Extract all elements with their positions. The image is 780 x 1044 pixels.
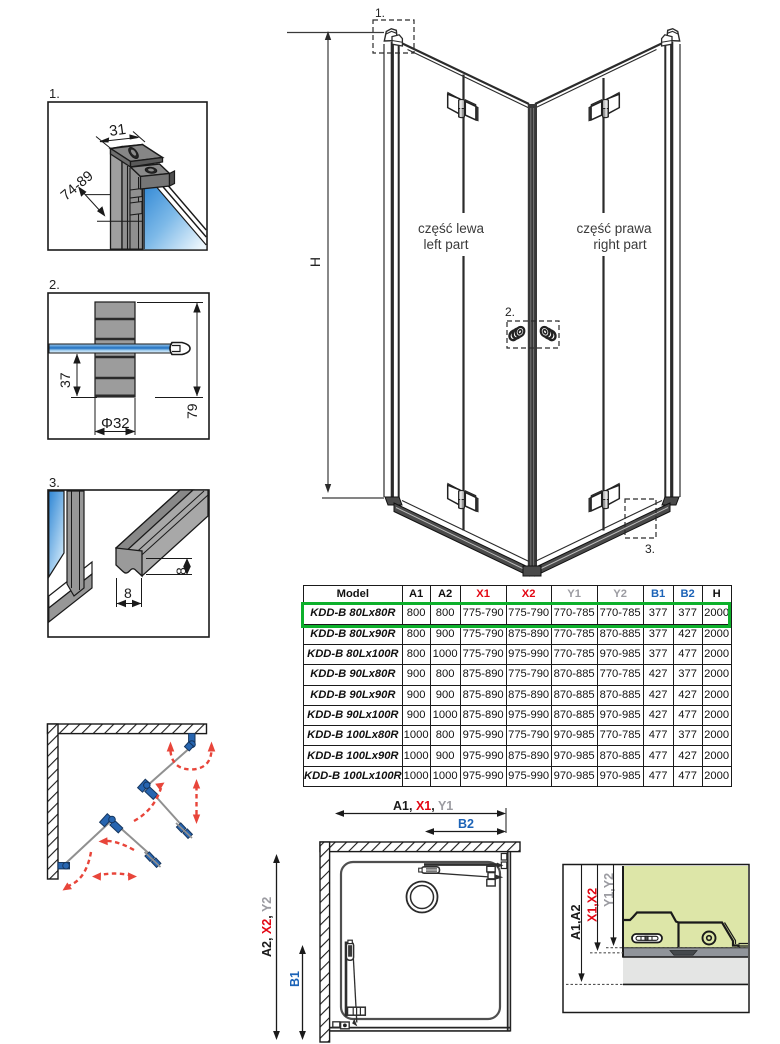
svg-text:1.: 1. (375, 6, 385, 20)
svg-text:część prawa: część prawa (576, 221, 652, 236)
svg-text:Φ32: Φ32 (101, 415, 130, 432)
svg-text:right part: right part (593, 237, 647, 252)
svg-text:left part: left part (423, 237, 468, 252)
svg-text:H: H (307, 257, 323, 267)
svg-text:8: 8 (124, 585, 132, 601)
svg-text:B2: B2 (458, 817, 474, 831)
svg-text:część lewa: część lewa (418, 221, 485, 236)
svg-text:3.: 3. (49, 475, 60, 490)
svg-text:31: 31 (108, 121, 127, 140)
svg-text:1.: 1. (49, 86, 60, 101)
svg-text:A2, X2, Y2: A2, X2, Y2 (260, 897, 274, 957)
svg-text:A1, X1, Y1: A1, X1, Y1 (393, 799, 453, 813)
svg-text:79: 79 (184, 403, 200, 419)
svg-text:3.: 3. (645, 542, 655, 556)
svg-text:A1,A2: A1,A2 (569, 905, 583, 940)
svg-text:2.: 2. (49, 277, 60, 292)
svg-text:37: 37 (57, 372, 73, 388)
svg-text:B1: B1 (288, 971, 302, 987)
svg-text:2.: 2. (505, 305, 515, 319)
